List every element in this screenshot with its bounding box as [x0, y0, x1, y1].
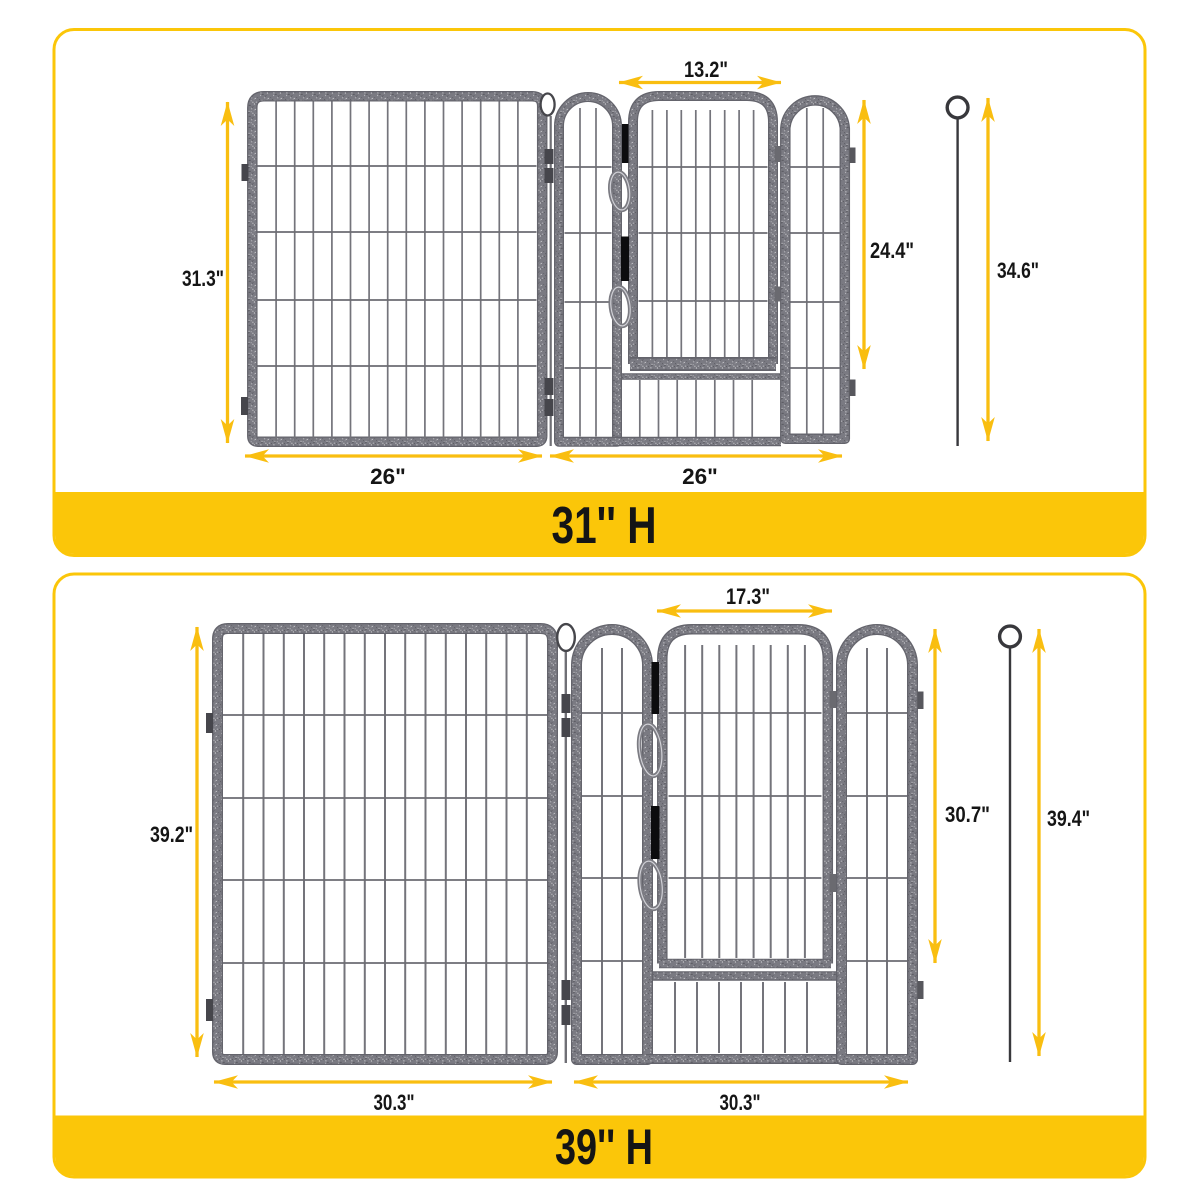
svg-text:17.3": 17.3" [726, 584, 770, 609]
svg-text:31'' H: 31'' H [552, 497, 657, 555]
svg-text:39.4": 39.4" [1047, 806, 1090, 831]
svg-text:34.6": 34.6" [997, 258, 1039, 283]
svg-text:13.2": 13.2" [684, 57, 728, 82]
svg-text:30.7": 30.7" [945, 802, 990, 827]
svg-text:30.3": 30.3" [720, 1090, 761, 1115]
svg-text:31.3": 31.3" [182, 266, 224, 291]
svg-text:39.2": 39.2" [150, 822, 193, 847]
svg-text:26": 26" [682, 464, 718, 489]
svg-text:39'' H: 39'' H [555, 1119, 653, 1175]
svg-text:30.3": 30.3" [374, 1090, 415, 1115]
svg-text:26": 26" [370, 464, 406, 489]
svg-text:24.4": 24.4" [870, 238, 914, 263]
